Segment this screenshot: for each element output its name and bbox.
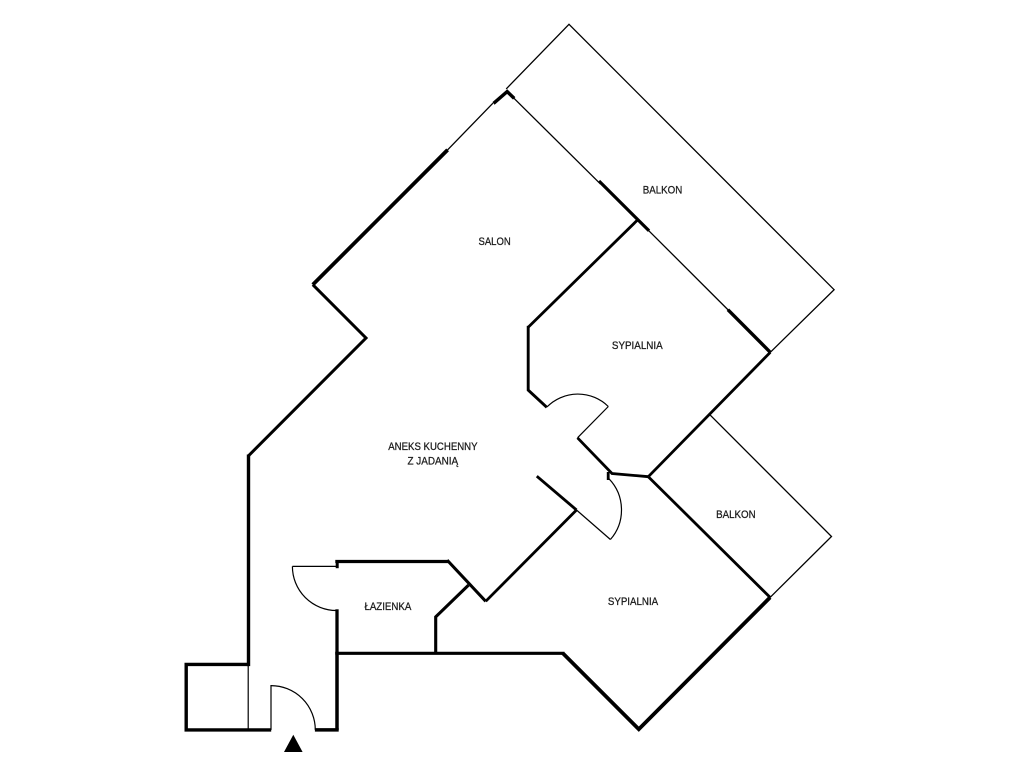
svg-text:SALON: SALON: [479, 236, 511, 248]
svg-text:BALKON: BALKON: [643, 185, 683, 197]
svg-text:SYPIALNIA: SYPIALNIA: [608, 596, 659, 608]
svg-text:SYPIALNIA: SYPIALNIA: [612, 340, 663, 352]
svg-text:ANEKS KUCHENNY: ANEKS KUCHENNY: [388, 441, 478, 453]
svg-text:Z JADANIĄ: Z JADANIĄ: [407, 456, 458, 468]
svg-text:BALKON: BALKON: [716, 509, 756, 521]
svg-text:ŁAZIENKA: ŁAZIENKA: [364, 601, 411, 613]
